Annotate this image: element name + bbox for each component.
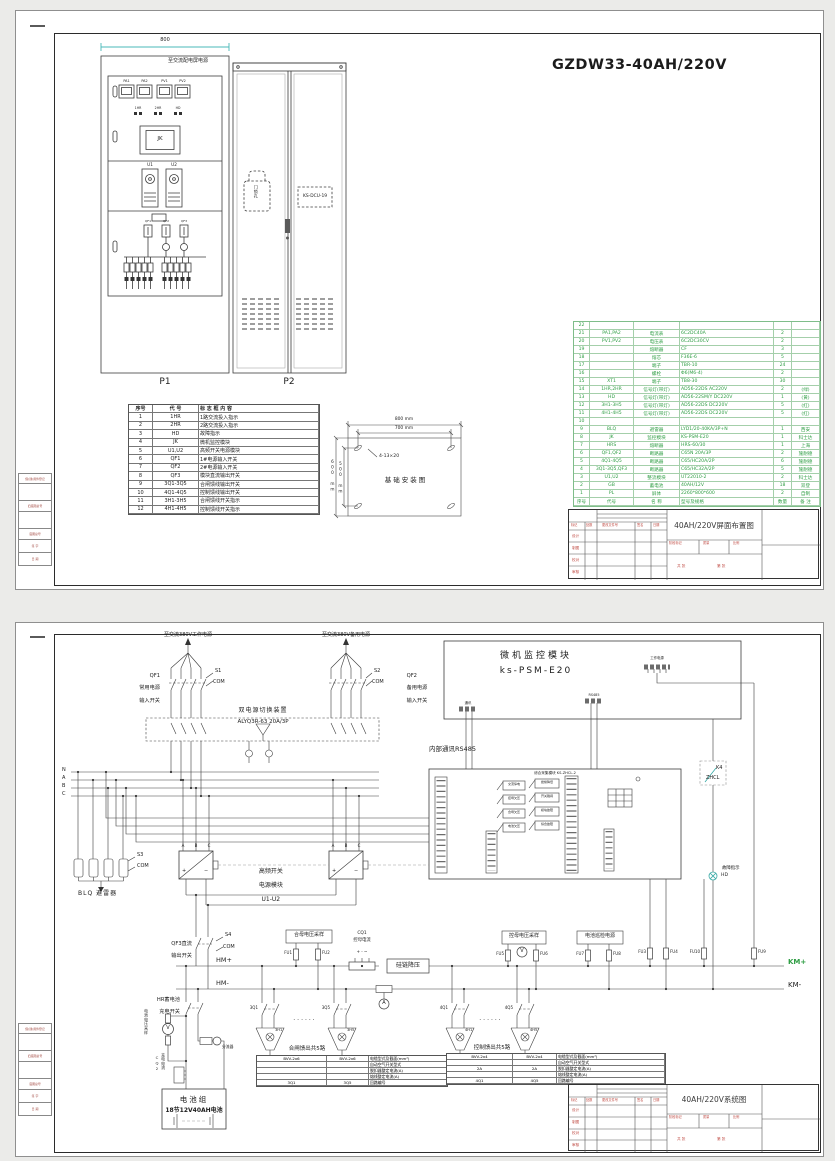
cell [590,370,634,378]
k4-label: K4 [716,766,722,772]
cell: (红) [792,402,820,410]
cell: 7 [574,442,590,450]
bom-row: 13 HD 信号灯(带灯) AD56-22SM/Y DC220V 1 (黄) [574,394,820,402]
cell: (红) [792,410,820,418]
s4-com-label: COM [223,945,235,951]
bom-row: 19 熔断器 CF 3 [574,346,820,354]
bom-row: 9 BLQ 避雷器 LYD1/20-40KA/3P+N 1 西安 [574,426,820,434]
cell: 21 [574,330,590,338]
cell: AD56-22DS DC220V [680,402,774,410]
rectifier-l1: 高频开关 [259,868,283,875]
mod2-plus: + [332,869,336,875]
phase-n: N [62,768,66,774]
silicon-dropper-box-label: 硅链降压 [396,962,420,969]
cell: 1HR [153,413,199,421]
p1-width-dim: 800 [160,38,170,44]
cell: 西安 [792,426,820,434]
margin-cell [18,1062,52,1079]
cell: C65/HC32A/2P [680,466,774,474]
cell: 5 [774,402,792,410]
fu10-label: FU10 [682,950,700,955]
cell: C65N 20A/3P [680,450,774,458]
shunt-label: 分流器 [222,1045,233,1049]
closing-feeder-body: BVV-2x6 BVV-2x6 电缆型式及截面(mm²) 自动空气开关型式 脱扣… [257,1056,447,1086]
foundation-slot-note: 4-13×20 [379,454,399,459]
cell: 3Q1 [257,1080,327,1086]
tb-stage: 阶段标记 [669,1116,682,1120]
cell [792,338,820,346]
cell: 信号灯(带灯) [634,402,680,410]
cell [680,418,774,426]
cell: 3 [574,474,590,482]
legend-row: 1 1HR 1路交流投入指示 [129,413,319,421]
cell [774,322,792,330]
cell: KS-PSM-E20 [680,434,774,442]
margin-cell: 借(通)用件登记 [18,1023,52,1034]
sheet2-title-block: 标记 处数 更改文件号 签名 日期 设计 制图 校对 审核 40AH/220V系… [568,1084,819,1151]
tb-design: 设计 [572,534,579,538]
cell: 科士达 [792,474,820,482]
cell [590,418,634,426]
s1-switch-label: S1 [215,669,221,675]
cell: 整流模块 [634,474,680,482]
supply1-label: 至交流380V工作电源 [164,633,212,639]
cell [590,322,634,330]
foundation-dim-600: 600 mm [329,459,334,492]
cell: 4 [129,439,153,447]
bom-row: 7 HRS 熔断器 HRS-60/30 1 上海 [574,442,820,450]
tb-date: 日期 [653,524,659,528]
qf1-code: QF1 [150,673,160,679]
hm-plus-label: HM+ [216,957,232,965]
cell: 2 [774,450,792,458]
cell: 2 [774,386,792,394]
cell: 4H1-4H5 [590,410,634,418]
cell: 5 [774,466,792,474]
cell: 断路器 [634,466,680,474]
meter-label: PA1 [123,79,129,83]
cell: 3 [129,430,153,438]
cell: 14 [574,386,590,394]
rs485-bus-label: 内部通讯RS485 [429,746,476,754]
cell: 信号灯(带灯) [634,394,680,402]
tb-mark: 标记 [571,1099,577,1103]
bom-header: 数量 [774,498,792,506]
cell: 上海 [792,442,820,450]
margin-cell [18,1034,52,1051]
tb-stage: 阶段标记 [669,542,682,546]
tb-approve: 审核 [572,570,579,574]
tb-mass: 质量 [703,1116,709,1120]
margin-cell [18,484,52,501]
phase-c: C [62,792,66,798]
cell: AD56-22SM/Y DC220V [680,394,774,402]
foundation-title: 基础安装图 [385,477,428,485]
km-sampling-box-label: 控母电压采样 [509,934,539,940]
km-minus-label: KM- [788,981,801,989]
cell: 信号灯(带灯) [634,410,680,418]
cell: 控制馈线开关指示 [199,506,319,514]
ats-title: 双电源切换装置 [238,707,287,714]
margin-cell [18,512,52,529]
fault-indicator-label: 故障指示 [722,866,740,871]
margin-cell: 借(通)用件登记 [18,473,52,484]
bom-row: 2 GB 蓄电池 40AH/12V 18 双登 [574,482,820,490]
cell: HD [153,430,199,438]
cell: 熔断器 [634,346,680,354]
control-feeder-table: BVV-2x4 BVV-2x4 电缆型式及截面(mm²) 自动空气开关型式 2A… [446,1053,666,1085]
legend-table: 序号 代 号 标 志 框 内 容 1 1HR 1路交流投入指示 2 2HR 2路… [128,404,320,515]
blq-label: BLQ 避雷器 [78,890,117,897]
mod1-b: B [195,844,198,849]
relay-label: 开关跳闸 [541,795,553,799]
cell: 避雷器 [634,426,680,434]
legend-row: 7 QF2 2#电源输入开关 [129,464,319,472]
qf1-input-label: QF1 常用电源 输入开关 [102,667,160,710]
cell: U1,U2 [590,474,634,482]
voltmeter-letter: V [520,949,523,955]
bom-header: 名 称 [634,498,680,506]
foundation-dim-800: 800 mm [395,417,413,422]
cq1-label: 控母电流 [353,938,371,943]
cell: F36E-6 [680,354,774,362]
bom-body: 22 21 PA1,PA2 电流表 6C2DC40A 2 [574,322,820,498]
qf2-code: QF2 [407,673,417,679]
legend-row: 6 QF1 1#电源输入开关 [129,455,319,463]
fu4-label: FU4 [670,950,678,955]
monitor-title: 微机监控模块 [500,651,572,662]
u1-label: U1 [147,163,153,168]
cell: TB8-30 [680,378,774,386]
fu6-label: FU6 [540,952,548,957]
fu5-label: FU5 [488,952,504,957]
tb-check: 校对 [572,558,579,562]
tb-design: 设计 [572,1108,579,1112]
cell: 电压表 [634,338,680,346]
cell: 2 [774,338,792,346]
s4-switch-label: S4 [225,933,231,939]
cell: 18 [574,354,590,362]
cell: 6 [574,450,590,458]
sheet1-panel-layout: 800 至交流配电屏电源 PA1 PA2 PV1 PV2 1HR 2HR HD … [15,10,824,590]
bom-header: 备 注 [792,498,820,506]
cell: HRS-60/30 [680,442,774,450]
cell: QF3 [153,472,199,480]
s3-com-label: COM [137,864,149,870]
bom-row: 3 U1,U2 整流模块 UT22010-2 2 科士达 [574,474,820,482]
cell: 3 [774,346,792,354]
cell: 40AH/12V [680,482,774,490]
s1-com-label: COM [213,680,225,686]
cell: HD [590,394,634,402]
cell: 15 [574,378,590,386]
qf2-line3: 输入开关 [407,698,428,704]
hr-charge-switch-label: HR蓄电池 充电开关 [136,991,180,1022]
cell: AD56-22DS AC220V [680,386,774,394]
battery-spec-label: 18节12V40AH电池 [165,1107,222,1114]
legend-header: 序号 [129,405,153,413]
bom-row: 11 4H1-4H5 信号灯(带灯) AD56-22DS DC220V 5 (红… [574,410,820,418]
s2-switch-label: S2 [374,669,380,675]
cq2-label: 充电电流 [161,1053,165,1070]
cell: 1#电源输入开关 [199,455,319,463]
fu3-label: FU3 [630,950,646,955]
cell [792,354,820,362]
bom-row: 22 [574,322,820,330]
lamp-3h5-label: 3H5 [347,1028,354,1032]
mod2-c: C [358,844,361,849]
tb-check: 校对 [572,1131,579,1135]
cell [792,346,820,354]
sheet1-title-block: 标记 处数 更改文件号 签名 日期 设计 制图 校对 审核 40AH/220V屏… [568,509,819,579]
cell: (绿) [792,386,820,394]
tb-date: 日期 [653,1099,659,1103]
cell: 故障指示 [199,430,319,438]
hr-l2: 充电开关 [159,1009,180,1015]
cell: 屏体 [634,490,680,498]
legend-body: 1 1HR 1路交流投入指示 2 2HR 2路交流投入指示 3 HD 故障指示 [129,413,319,514]
qf2-input-label: QF2 备用电源 输入开关 [400,667,458,710]
feeder-3q1-label: 3Q1 [242,1006,258,1011]
cell: 科士达 [792,434,820,442]
legend-header: 代 号 [153,405,199,413]
indicator-label: 2HR [155,107,162,111]
mod2-a: A [332,844,335,849]
cell: 施耐德 [792,450,820,458]
lamp-4h5-label: 4H5 [530,1028,537,1032]
cell: UT22010-2 [680,474,774,482]
cell: 30 [774,378,792,386]
cell: U1,U2 [153,447,199,455]
jk-label: JK [157,136,162,142]
cell: 4H1-4H5 [153,506,199,514]
cq1-pins: + - ~ [357,950,368,955]
cell [590,354,634,362]
cell: 断路器 [634,458,680,466]
drawing-viewer-canvas: { "s1": { "title": "GZDW33-40AH/220V", "… [0,0,835,1161]
cell: 12 [129,506,153,514]
cell: AD56-22DS DC220V [680,410,774,418]
closing-feeder-table: BVV-2x6 BVV-2x6 电缆型式及截面(mm²) 自动空气开关型式 脱扣… [256,1055,448,1087]
legend-row: 11 3H1-3H5 合闸馈线开关指示 [129,497,319,505]
legend-row: 2 2HR 2路交流投入指示 [129,422,319,430]
feeder-dots: ······ [479,1017,502,1024]
cell: 2HR [153,422,199,430]
cell: 端子 [634,378,680,386]
feeder-dots: ······ [293,1017,316,1024]
cell: 电流表 [634,330,680,338]
tb-scale: 比例 [733,542,739,546]
tb-page: 第 张 [717,1137,725,1141]
cell: QF1,QF2 [590,450,634,458]
cell: 8 [574,434,590,442]
cell: 3H1-3H5 [153,497,199,505]
margin-cell: 签 字 [18,1090,52,1103]
cell: 端子 [634,362,680,370]
tb-sign: 签名 [637,524,643,528]
cell: 2 [774,490,792,498]
relay-label: 模块故障 [541,809,553,813]
cell [590,346,634,354]
relay-label: 电池欠压 [508,825,520,829]
mod2-minus: − [354,869,358,875]
lamp-3h1-label: 3H1 [275,1028,282,1032]
meter-label: PA2 [141,79,147,83]
cell: PV1,PV2 [590,338,634,346]
cell: 12 [574,402,590,410]
qf3-l1: QF3直流 [171,941,192,947]
monitor-comm-conn-label: 通讯 [465,701,472,705]
cell: 合闸馈线开关指示 [199,497,319,505]
tb-sign: 签名 [637,1099,643,1103]
cell: LYD1/20-40KA/3P+N [680,426,774,434]
cell: 7 [129,464,153,472]
cell: 1 [129,413,153,421]
cell: 5 [774,354,792,362]
cell: 2 [574,482,590,490]
cell: 熔断器 [634,442,680,450]
cell: 18 [774,482,792,490]
bom-row: 1 PL 屏体 2260*800*600 2 自制 [574,490,820,498]
cell: TBR-10 [680,362,774,370]
relay-label: 交流停电 [508,783,520,787]
cell [590,362,634,370]
bom-header: 型号及规格 [680,498,774,506]
cell: CF [680,346,774,354]
bom-header: 序号 [574,498,590,506]
cell: XT1 [590,378,634,386]
sheet1-margin-table: 借(通)用件登记 旧底图总号 底图总号 签 字 日 期 [18,473,52,566]
legend-row: 5 U1,U2 高频开关电源模块 [129,447,319,455]
legend-row: 3 HD 故障指示 [129,430,319,438]
cell: 22 [574,322,590,330]
cell: 9 [129,481,153,489]
cell: 10 [574,418,590,426]
p1-top-label: 至交流配电屏电源 [168,59,208,65]
cell: JK [153,439,199,447]
margin-cell: 日 期 [18,1103,52,1116]
cell: 1 [774,434,792,442]
qf3-l2: 输出开关 [171,953,192,959]
mod2-b: B [345,844,348,849]
cq1-code: CQ1 [357,931,366,936]
cell: BLQ [590,426,634,434]
supply2-label: 至交流380V备用电源 [322,633,370,639]
cell [792,378,820,386]
bom-row: 6 QF1,QF2 断路器 C65N 20A/3P 2 施耐德 [574,450,820,458]
collector-title: 综合采集模块 KS-ZHCL-2 [534,771,576,775]
cell [634,322,680,330]
cell: 4 [574,466,590,474]
feeder-4q1-label: 4Q1 [432,1006,448,1011]
cell [792,330,820,338]
bom-row: 18 熔芯 F36E-6 5 [574,354,820,362]
rectifier-l2: 电源模块 [259,882,283,889]
qf3-label: QF3直流 输出开关 [148,935,192,966]
p1-name: P1 [159,377,170,388]
tb-draw: 制图 [572,546,579,550]
cell: 19 [574,346,590,354]
cell: 10 [129,489,153,497]
cell: 6 [774,458,792,466]
qf1-label: QF1 [145,220,151,224]
cell: 高频开关电源模块 [199,447,319,455]
monitor-rs485-conn-label: RS485 [589,693,600,697]
cell: 自制 [792,490,820,498]
bom-header-row: 序号 代号 名 称 型号及规格 数量 备 注 [574,498,820,506]
bom-row: 20 PV1,PV2 电压表 6C2DC30CV 2 [574,338,820,346]
qf2-line2: 备用电源 [407,685,428,691]
cell: 2 [774,370,792,378]
rectifier-l3: U1-U2 [262,896,281,903]
bom-row: 4 3Q1-3Q5,QF3 断路器 C65/HC32A/2P 5 施耐德 [574,466,820,474]
cell [792,362,820,370]
lamp-4h1-label: 4H1 [465,1028,472,1032]
cell: 8 [129,472,153,480]
hd-lamp-label: HD [721,873,728,878]
margin-cell: 日 期 [18,553,52,566]
fu1-label: FU1 [276,951,292,956]
bom-row: 17 端子 TBR-10 24 [574,362,820,370]
hm-sampling-box-label: 合母电压采样 [294,933,324,939]
cell: C65/HC20A/2P [680,458,774,466]
tb-scale: 比例 [733,1116,739,1120]
battery-voltmeter-letter: V [166,1026,169,1032]
feeder-4q5-label: 4Q5 [497,1006,513,1011]
cell [792,370,820,378]
cell: 2260*800*600 [680,490,774,498]
mod1-c: C [208,844,211,849]
qf1-line2: 常用电源 [139,685,160,691]
cell: 5 [129,447,153,455]
monitor-power-conn-label: 工作电源 [650,656,664,660]
cell: 施耐德 [792,458,820,466]
cell: 控制馈线输出开关 [199,489,319,497]
cell: 5 [574,458,590,466]
battery-group-label: 电池组 [180,1096,209,1105]
foundation-dim-700: 700 mm [395,426,413,431]
p2-lock-cutout-label: 门锁孔 [253,185,258,199]
cell: GB [590,482,634,490]
margin-cell: 签 字 [18,540,52,553]
feeder-row: 3Q1 3Q5 回路编号 [257,1080,447,1086]
control-feeder-body: BVV-2x4 BVV-2x4 电缆型式及截面(mm²) 自动空气开关型式 2A… [447,1054,665,1084]
cell: 11 [129,497,153,505]
mod1-minus: − [204,869,208,875]
p2-name: P2 [283,377,294,388]
cell: 4Q5 [513,1078,557,1084]
tb-count: 处数 [586,1099,592,1103]
sheet2-margin-table: 借(通)用件登记 旧底图总号 底图总号 签 字 日 期 [18,1023,52,1116]
fu9-label: FU9 [758,950,766,955]
cell: 1 [774,394,792,402]
battery-patrol-box-label: 电池巡检电源 [585,934,615,940]
bom-row: 16 螺栓 Φ6(M6-4) 2 [574,370,820,378]
indicator-label: HD [176,107,181,111]
cell: JK [590,434,634,442]
cell: 3H1-3H5 [590,402,634,410]
cell: 2#电源输入开关 [199,464,319,472]
fu7-label: FU7 [568,952,584,957]
cell [792,418,820,426]
cell: Φ6(M6-4) [680,370,774,378]
legend-row: 9 3Q1-3Q5 合闸馈线输出开关 [129,481,319,489]
bom-row: 12 3H1-3H5 信号灯(带灯) AD56-22DS DC220V 5 (红… [574,402,820,410]
fu2-label: FU2 [322,951,330,956]
cell: 微机监控模块 [199,439,319,447]
bom-row: 14 1HR,2HR 信号灯(带灯) AD56-22DS AC220V 2 (绿… [574,386,820,394]
zhcl-label: ZHCL [706,776,719,782]
